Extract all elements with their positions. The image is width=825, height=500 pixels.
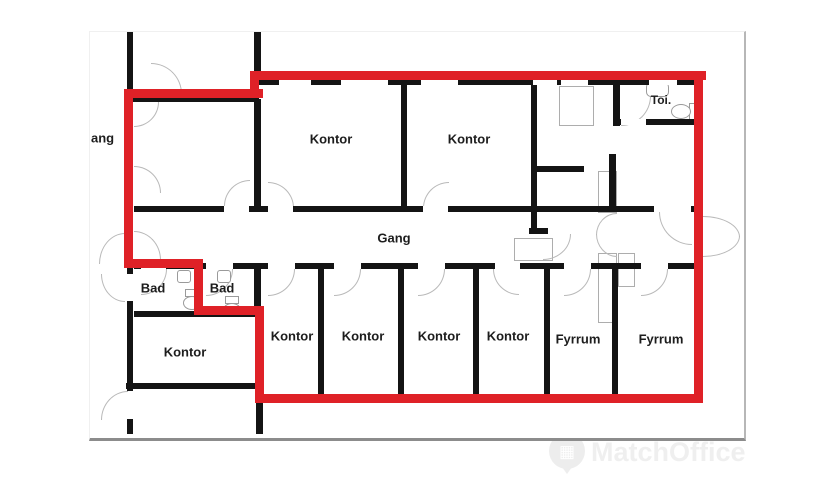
door-arc bbox=[268, 182, 294, 208]
door-arc bbox=[703, 236, 740, 257]
door-arc bbox=[101, 274, 125, 302]
boiler-outline bbox=[618, 253, 635, 287]
room-label-kontor: Kontor bbox=[418, 329, 461, 344]
building-glyph-icon: ▦ bbox=[559, 443, 575, 460]
door-arc bbox=[134, 166, 161, 193]
room-label-kontor: Kontor bbox=[342, 329, 385, 344]
highlight-outline-segment bbox=[124, 89, 133, 268]
wall bbox=[127, 98, 259, 102]
room-label-kontor: Kontor bbox=[487, 329, 530, 344]
sink-icon bbox=[177, 270, 191, 283]
door-gap bbox=[268, 263, 295, 269]
highlight-outline-segment bbox=[694, 71, 703, 403]
room-label-gang: Gang bbox=[377, 231, 410, 246]
watermark-brand-text: MatchOffice bbox=[591, 437, 746, 468]
door-arc bbox=[641, 269, 668, 296]
door-arc bbox=[493, 269, 519, 295]
wall bbox=[126, 383, 263, 389]
room-label-bad: Bad bbox=[210, 281, 235, 296]
wall bbox=[537, 166, 584, 172]
door-arc bbox=[134, 102, 159, 127]
door-arc bbox=[134, 231, 161, 260]
door-arc bbox=[334, 269, 361, 296]
door-arc bbox=[418, 269, 445, 296]
room-label-gang-partial: ang bbox=[91, 131, 114, 146]
door-gap bbox=[268, 206, 293, 212]
door-arc bbox=[423, 182, 449, 208]
door-gap bbox=[206, 263, 233, 269]
door-arc bbox=[101, 391, 128, 420]
door-gap bbox=[654, 206, 691, 212]
room-label-bad: Bad bbox=[141, 281, 166, 296]
room-label-fyrrum: Fyrrum bbox=[639, 332, 684, 347]
door-arc bbox=[268, 269, 295, 296]
wall bbox=[127, 419, 133, 434]
room-label-kontor: Kontor bbox=[448, 132, 491, 147]
wall bbox=[398, 269, 404, 399]
door-gap bbox=[495, 263, 520, 269]
highlight-outline-segment bbox=[124, 89, 263, 98]
highlight-outline-segment bbox=[124, 259, 203, 268]
door-gap bbox=[564, 263, 591, 269]
door-arc bbox=[596, 213, 617, 235]
wall bbox=[127, 301, 133, 391]
door-arc bbox=[703, 216, 740, 237]
wall bbox=[401, 85, 407, 209]
door-gap bbox=[418, 263, 445, 269]
door-arc bbox=[99, 233, 125, 264]
room-label-toi: Toi. bbox=[651, 93, 671, 107]
highlight-outline-segment bbox=[259, 394, 703, 403]
door-gap bbox=[334, 263, 361, 269]
door-arc bbox=[224, 180, 250, 206]
wall bbox=[529, 228, 548, 234]
highlight-outline-segment bbox=[250, 71, 706, 80]
room-label-fyrrum: Fyrrum bbox=[556, 332, 601, 347]
room-label-kontor: Kontor bbox=[164, 345, 207, 360]
wall bbox=[612, 269, 618, 399]
floor-plan-canvas: ang Kontor Kontor Toi. Gang Bad Bad Kont… bbox=[89, 31, 746, 441]
wall bbox=[254, 32, 261, 76]
door-gap bbox=[621, 119, 646, 125]
door-arc bbox=[543, 234, 571, 260]
toilet-icon bbox=[671, 104, 691, 119]
door-gap bbox=[224, 206, 249, 212]
wall bbox=[473, 269, 479, 399]
wall bbox=[609, 154, 616, 212]
highlight-outline-segment bbox=[255, 313, 264, 403]
closet-outline bbox=[559, 86, 594, 126]
highlight-outline-segment bbox=[194, 260, 203, 315]
room-label-kontor: Kontor bbox=[310, 132, 353, 147]
door-arc bbox=[659, 212, 692, 245]
door-gap bbox=[641, 263, 668, 269]
highlight-outline-segment bbox=[198, 306, 264, 315]
wall bbox=[254, 99, 261, 209]
wall bbox=[544, 269, 550, 399]
door-gap bbox=[423, 206, 448, 212]
room-label-kontor: Kontor bbox=[271, 329, 314, 344]
wall bbox=[318, 269, 324, 399]
floor-plan-image: ▦ MatchOffice bbox=[0, 0, 825, 500]
door-arc bbox=[564, 269, 591, 296]
